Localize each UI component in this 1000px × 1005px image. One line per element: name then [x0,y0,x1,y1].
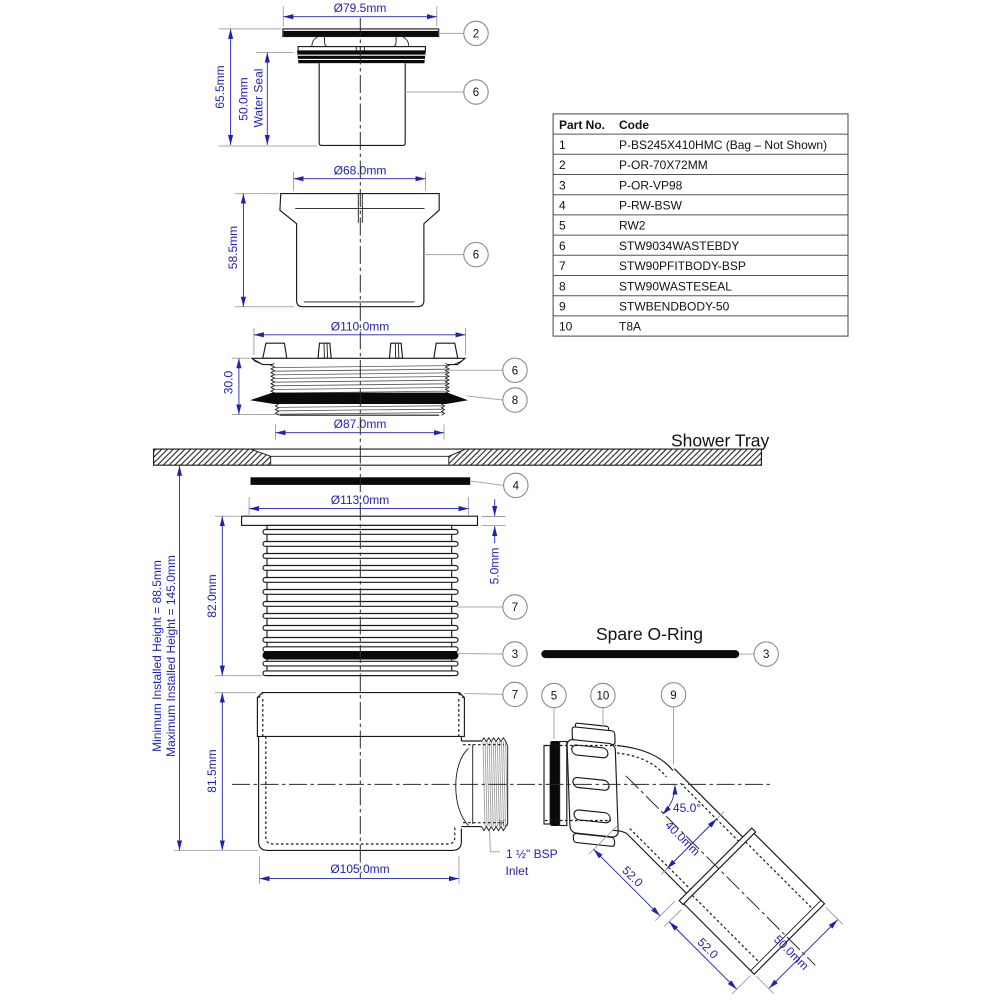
svg-text:2: 2 [559,158,566,172]
svg-text:P-RW-BSW: P-RW-BSW [619,199,683,213]
svg-text:STW9034WASTEBDY: STW9034WASTEBDY [619,239,739,253]
svg-text:T8A: T8A [619,320,641,334]
svg-text:6: 6 [473,250,479,262]
svg-text:1 ½" BSP: 1 ½" BSP [506,847,558,861]
svg-text:2: 2 [473,29,479,41]
svg-text:6: 6 [512,365,518,377]
svg-text:52.0: 52.0 [619,863,646,890]
svg-text:Code: Code [619,118,649,132]
svg-text:50.0mm: 50.0mm [237,77,251,120]
svg-text:P-OR-VP98: P-OR-VP98 [619,178,683,192]
svg-text:5: 5 [551,691,557,703]
svg-text:Inlet: Inlet [506,864,529,878]
svg-text:30.0: 30.0 [222,370,236,394]
svg-text:Spare O-Ring: Spare O-Ring [596,624,703,644]
svg-text:9: 9 [670,690,676,702]
svg-text:P-BS245X410HMC (Bag – Not Show: P-BS245X410HMC (Bag – Not Shown) [619,138,827,152]
svg-text:4: 4 [559,199,566,213]
svg-text:Water Seal: Water Seal [252,69,266,128]
svg-text:3: 3 [512,649,518,661]
svg-text:81.5mm: 81.5mm [205,749,219,792]
svg-text:Shower Tray: Shower Tray [671,431,769,451]
svg-text:P-OR-70X72MM: P-OR-70X72MM [619,158,708,172]
svg-text:7: 7 [559,259,566,273]
svg-text:7: 7 [512,602,518,614]
svg-text:65.5mm: 65.5mm [213,65,227,108]
svg-text:4: 4 [513,481,520,493]
svg-text:7: 7 [512,690,518,702]
svg-text:3: 3 [763,649,769,661]
svg-text:Part No.: Part No. [559,118,605,132]
svg-text:82.0mm: 82.0mm [205,574,219,617]
svg-text:Ø79.5mm: Ø79.5mm [334,1,387,15]
svg-text:45.0°: 45.0° [673,801,701,815]
svg-text:9: 9 [559,300,566,314]
svg-text:Minimum Installed Height = 88.: Minimum Installed Height = 88.5mm [150,560,164,752]
svg-text:5.0mm: 5.0mm [488,548,502,585]
svg-text:STW90PFITBODY-BSP: STW90PFITBODY-BSP [619,259,746,273]
svg-text:10: 10 [559,320,573,334]
svg-text:6: 6 [559,239,566,253]
svg-text:58.5mm: 58.5mm [226,226,240,269]
svg-text:STWBENDBODY-50: STWBENDBODY-50 [619,300,730,314]
svg-text:8: 8 [512,395,518,407]
svg-text:1: 1 [559,138,566,152]
svg-text:5: 5 [559,219,566,233]
svg-text:6: 6 [473,87,479,99]
svg-text:STW90WASTESEAL: STW90WASTESEAL [619,279,732,293]
svg-text:Maximum Installed Height = 145: Maximum Installed Height = 145.0mm [164,555,178,757]
svg-text:RW2: RW2 [619,219,646,233]
svg-text:52.0: 52.0 [695,935,722,962]
svg-text:3: 3 [559,178,566,192]
svg-text:10: 10 [597,691,610,703]
svg-text:8: 8 [559,279,566,293]
